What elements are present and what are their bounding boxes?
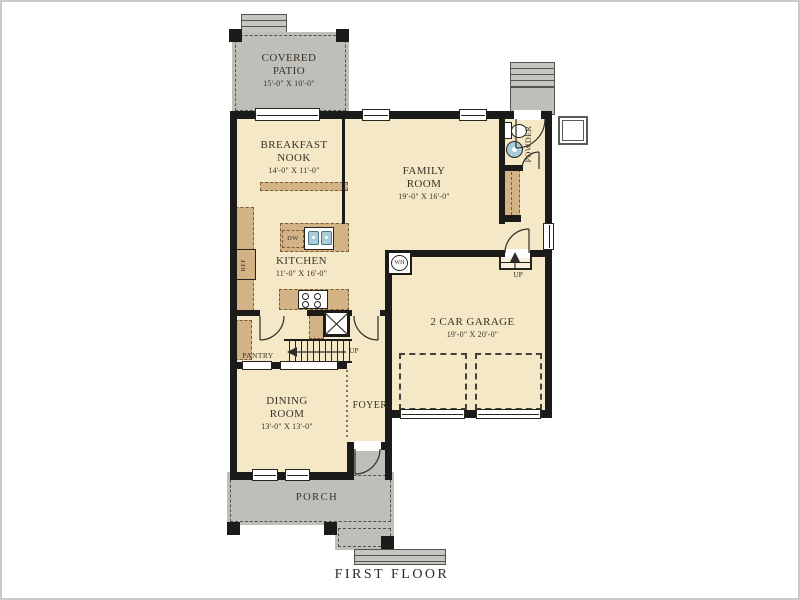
dining-opening-1	[242, 361, 272, 370]
water-heater: WH	[387, 251, 412, 275]
water-heater-circle: WH	[391, 255, 408, 271]
wall-left	[230, 111, 237, 480]
up-stairs-label: UP	[349, 346, 371, 355]
parking-spot-right	[475, 353, 542, 410]
room-name-line: PATIO	[239, 65, 339, 78]
wall-pantry-top	[230, 310, 260, 316]
pantry-label: PANTRY	[232, 349, 284, 362]
burner	[302, 293, 309, 300]
patio-post-right	[336, 29, 349, 42]
front-door-opening	[354, 441, 381, 451]
side-stoop	[510, 62, 555, 115]
powder-label: POWDER	[522, 118, 534, 170]
room-name-line: BREAKFAST	[244, 139, 344, 152]
staircase	[284, 339, 352, 363]
garage-label: 2 CAR GARAGE 19'-0" X 20'-0"	[420, 316, 525, 340]
kitchen-sink-unit	[304, 227, 334, 250]
floor-plan: REF DW WH	[0, 0, 800, 600]
garage-door-2	[476, 409, 541, 419]
sink-basin-right	[321, 231, 332, 245]
room-name-line: DINING	[237, 395, 337, 408]
patio-steps	[241, 14, 287, 33]
room-name-line: NOOK	[244, 152, 344, 165]
closet-rod-line	[511, 172, 512, 215]
dishwasher-label: DW	[287, 235, 299, 242]
room-dims: 19'-0" X 16'-0"	[374, 192, 474, 202]
room-name-line: FOYER	[353, 400, 388, 411]
porch-label: PORCH	[285, 491, 349, 504]
burner	[314, 301, 321, 308]
wall-family-south-b	[380, 310, 392, 316]
kitchen-label: KITCHEN 11'-0" X 16'-0"	[249, 255, 354, 279]
wall-garage-left	[385, 250, 392, 480]
room-name-line: 2 CAR GARAGE	[420, 316, 525, 329]
porch-entry-steps	[354, 549, 446, 565]
room-name-line: PORCH	[296, 492, 339, 503]
covered-patio-label: COVERED PATIO 15'-0" X 10'-0"	[239, 52, 339, 89]
sink-basin-left	[308, 231, 319, 245]
room-dims: 15'-0" X 10'-0"	[239, 79, 339, 89]
room-name-line: POWDER	[524, 126, 533, 163]
dining-room-label: DINING ROOM 13'-0" X 13'-0"	[237, 395, 337, 432]
room-name-line: PANTRY	[242, 351, 273, 360]
patio-post-left	[229, 29, 242, 42]
wall-hall-bottom	[499, 215, 521, 222]
wall-powder-bottom	[499, 165, 523, 171]
ac-pad	[558, 116, 588, 145]
annotation-text: UP	[513, 270, 523, 279]
parking-spot-left	[399, 353, 467, 410]
dining-window-2	[285, 469, 310, 481]
stoop-steps	[510, 62, 555, 88]
room-name-line: ROOM	[237, 408, 337, 421]
family-room-label: FAMILY ROOM 19'-0" X 16'-0"	[374, 165, 474, 202]
burner	[302, 301, 309, 308]
side-window	[543, 223, 554, 250]
garage-entry-opening	[505, 249, 530, 258]
fireplace-chase	[323, 310, 350, 337]
room-dims: 19'-0" X 20'-0"	[420, 330, 525, 340]
family-window-2	[459, 109, 487, 121]
porch-post-mid	[324, 522, 337, 535]
dining-window-1	[252, 469, 278, 481]
patio-slider-window	[255, 108, 320, 121]
water-heater-label: WH	[395, 260, 405, 266]
dining-opening-2	[280, 361, 338, 370]
porch-post-right	[381, 536, 394, 549]
plan-title: FIRST FLOOR	[307, 567, 477, 583]
breakfast-nook-label: BREAKFAST NOOK 14'-0" X 11'-0"	[244, 139, 344, 176]
foyer-label: FOYER	[338, 399, 402, 412]
family-window-1	[362, 109, 390, 121]
porch-door-landing	[354, 448, 385, 474]
burner	[314, 293, 321, 300]
up-garage-label: UP	[504, 270, 532, 279]
refrigerator-label: REF	[241, 258, 247, 271]
porch-post-left	[227, 522, 240, 535]
range-cooktop	[298, 290, 328, 309]
dishwasher: DW	[282, 230, 304, 248]
annotation-text: UP	[349, 346, 359, 355]
room-dims: 14'-0" X 11'-0"	[244, 166, 344, 176]
room-dims: 13'-0" X 13'-0"	[237, 422, 337, 432]
garage-door-1	[400, 409, 465, 419]
room-dims: 11'-0" X 16'-0"	[249, 269, 354, 279]
sink-drain	[512, 147, 517, 152]
powder-sink	[506, 141, 523, 158]
wall-right	[545, 111, 552, 418]
room-name-line: ROOM	[374, 178, 474, 191]
kitchen-upper-cabinet	[260, 182, 348, 191]
room-name-line: COVERED	[239, 52, 339, 65]
room-name-line: FAMILY	[374, 165, 474, 178]
room-name-line: KITCHEN	[249, 255, 354, 268]
